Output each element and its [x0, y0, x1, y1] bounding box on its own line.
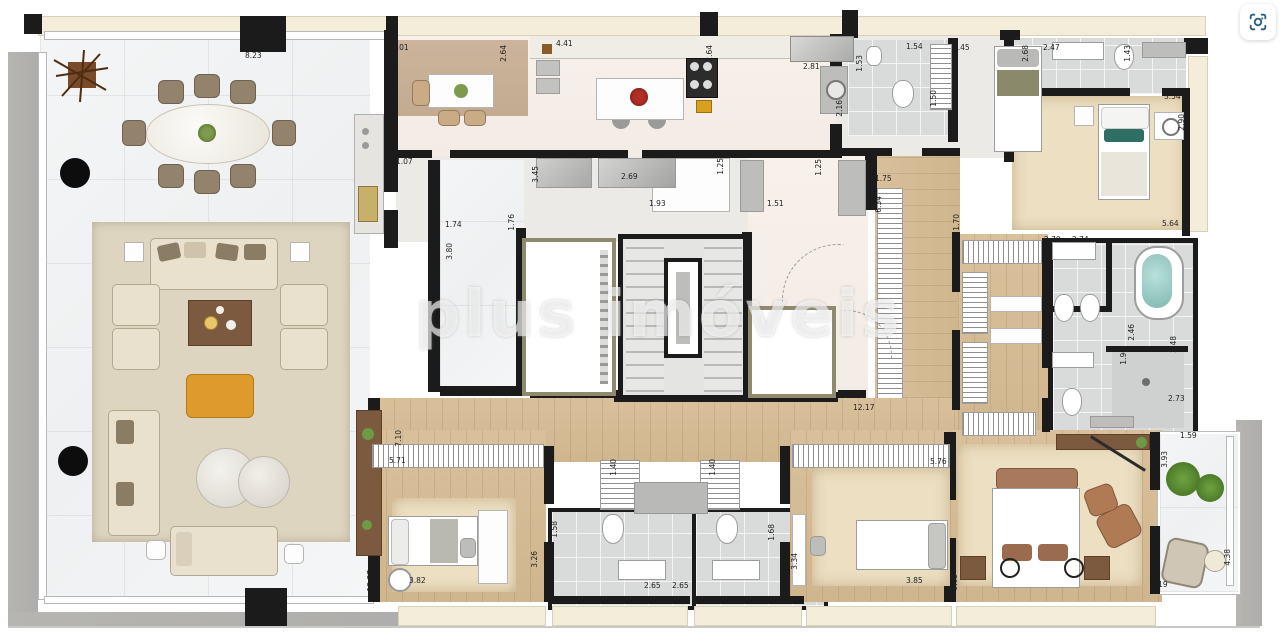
dimension-label: 2.16	[836, 100, 844, 117]
dimension-label: 1.70	[953, 214, 961, 231]
dimension-label: 1.93	[649, 200, 666, 208]
dimension-label: 1.54	[906, 43, 923, 51]
dimension-label: 2.45	[953, 44, 970, 52]
dimension-label: 2.64	[500, 45, 508, 62]
dimension-label: 1.07	[396, 158, 413, 166]
dimension-label: 6.34	[875, 196, 883, 213]
dimension-label: 1.53	[856, 55, 864, 72]
dimension-label: 5.76	[930, 458, 947, 466]
dimension-label: 5.71	[389, 457, 406, 465]
visual-search-button[interactable]	[1240, 4, 1276, 40]
dimension-label: 1.25	[815, 159, 823, 176]
dimension-label: 8.65	[951, 574, 959, 591]
dimension-label: 2.90	[1178, 114, 1186, 131]
dimension-label: 3.45	[532, 166, 540, 183]
dimension-label: 13.37	[367, 570, 375, 591]
dimension-label: 1.59	[1180, 432, 1197, 440]
dimension-label: 3.54	[1164, 93, 1181, 101]
dimension-label: 3.01	[392, 44, 409, 52]
dimension-label: 5.19	[1151, 581, 1168, 589]
watermark: plus imóveis	[415, 278, 902, 352]
dimension-label: 5.64	[1162, 220, 1179, 228]
dimension-label: 1.58	[551, 521, 559, 538]
dimension-label: 1.50	[930, 90, 938, 107]
dimension-label: 2.47	[1043, 44, 1060, 52]
dimension-label: 1.75	[875, 175, 892, 183]
dimension-label: 12.17	[853, 404, 874, 412]
dimension-label: 3.85	[906, 577, 923, 585]
dimension-label: 3.93	[1161, 451, 1169, 468]
dimension-label: 2.73	[1168, 395, 1185, 403]
dimension-label: 2.65	[672, 582, 689, 590]
floor-plan-page: plus imóveis 8.233.014.412.811.542.452.4…	[0, 0, 1280, 636]
dimension-label: 1.40	[709, 459, 717, 476]
dimension-label: 2.48	[1170, 336, 1178, 353]
dimension-label: 3.82	[409, 577, 426, 585]
dimension-label: 1.50	[448, 387, 465, 395]
dimension-label: 1.76	[508, 214, 516, 231]
dimension-label: 2.68	[1022, 45, 1030, 62]
dimension-label: 3.80	[446, 243, 454, 260]
dimension-label: 2.46	[1128, 324, 1136, 341]
dimension-label: 1.51	[767, 200, 784, 208]
dimension-label: 7.10	[395, 430, 403, 447]
dimension-label: 1.74	[445, 221, 462, 229]
dimension-label: 1.90	[1120, 348, 1128, 365]
dimension-label: 4.38	[1224, 549, 1232, 566]
dimension-label: 2.70	[1044, 236, 1061, 244]
dimension-label: 3.34	[791, 553, 799, 570]
dimension-label: 3.26	[531, 551, 539, 568]
dimension-label: 2.64	[706, 45, 714, 62]
dimension-label: 4.41	[556, 40, 573, 48]
dimension-label: 1.43	[1124, 45, 1132, 62]
dimension-label: 1.40	[610, 459, 618, 476]
dimension-label: 2.81	[803, 63, 820, 71]
dimension-label: 2.74	[1072, 236, 1089, 244]
dimension-label: 8.23	[245, 52, 262, 60]
dimension-label: 1.68	[768, 524, 776, 541]
dimension-label: 2.69	[621, 173, 638, 181]
dimension-label: 2.65	[644, 582, 661, 590]
dimension-label: 1.25	[717, 158, 725, 175]
camera-lens-icon	[1247, 11, 1269, 33]
